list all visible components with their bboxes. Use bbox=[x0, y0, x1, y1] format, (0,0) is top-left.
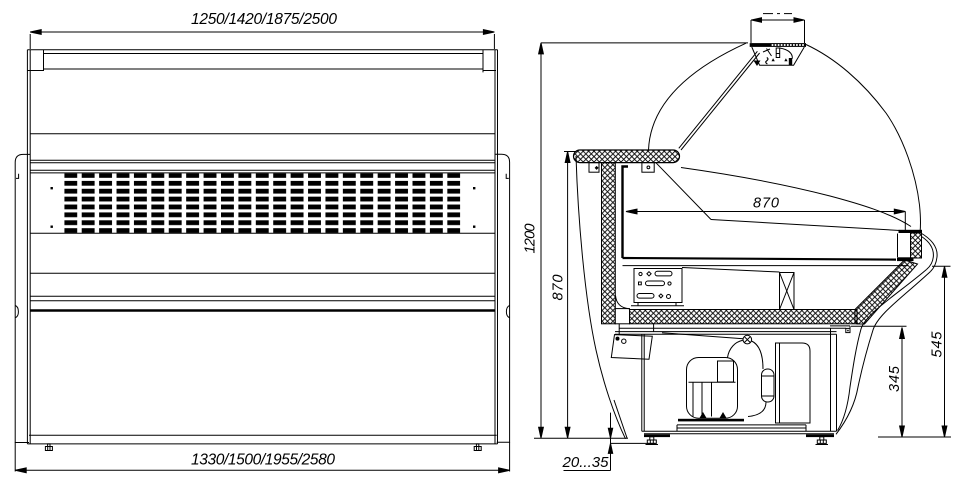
svg-text:545: 545 bbox=[930, 331, 946, 358]
svg-text:345: 345 bbox=[887, 365, 903, 392]
svg-text:1250/1420/1875/2500: 1250/1420/1875/2500 bbox=[191, 11, 337, 28]
svg-text:870: 870 bbox=[551, 275, 567, 301]
svg-text:1200: 1200 bbox=[523, 224, 539, 254]
svg-text:870: 870 bbox=[753, 196, 779, 212]
svg-text:1330/1500/1955/2580: 1330/1500/1955/2580 bbox=[191, 452, 335, 469]
svg-text:20...35: 20...35 bbox=[562, 454, 610, 471]
